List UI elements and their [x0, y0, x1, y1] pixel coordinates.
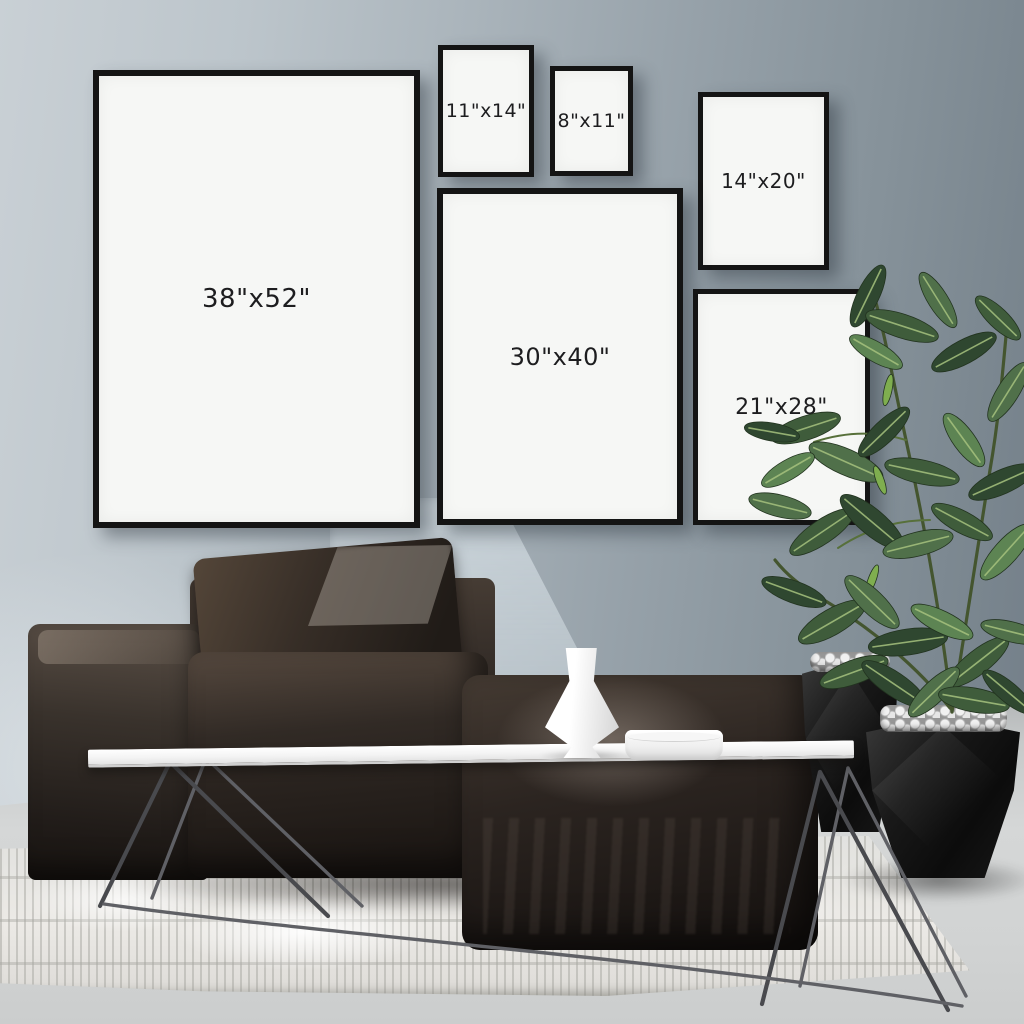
frame-30x40: 30"x40" — [437, 188, 683, 525]
planter-back-pebbles — [810, 652, 890, 672]
frame-21x28: 21"x28" — [693, 289, 870, 525]
sofa-ottoman-cushion — [462, 675, 818, 950]
frame-38x52: 38"x52" — [93, 70, 420, 528]
room-size-guide-photo: 38"x52" 11"x14" 8"x11" 14"x20" 30"x40" 2… — [0, 0, 1024, 1024]
frame-11x14: 11"x14" — [438, 45, 534, 177]
size-label-21x28: 21"x28" — [735, 395, 828, 420]
frame-8x11: 8"x11" — [550, 66, 633, 176]
size-label-14x20: 14"x20" — [721, 169, 806, 193]
frame-14x20: 14"x20" — [698, 92, 829, 270]
size-label-11x14: 11"x14" — [446, 100, 527, 122]
size-label-38x52: 38"x52" — [202, 284, 311, 314]
planter-front-pebbles — [880, 705, 1007, 732]
size-label-8x11: 8"x11" — [558, 110, 626, 132]
size-label-30x40: 30"x40" — [510, 343, 611, 371]
white-bowl — [625, 730, 723, 760]
